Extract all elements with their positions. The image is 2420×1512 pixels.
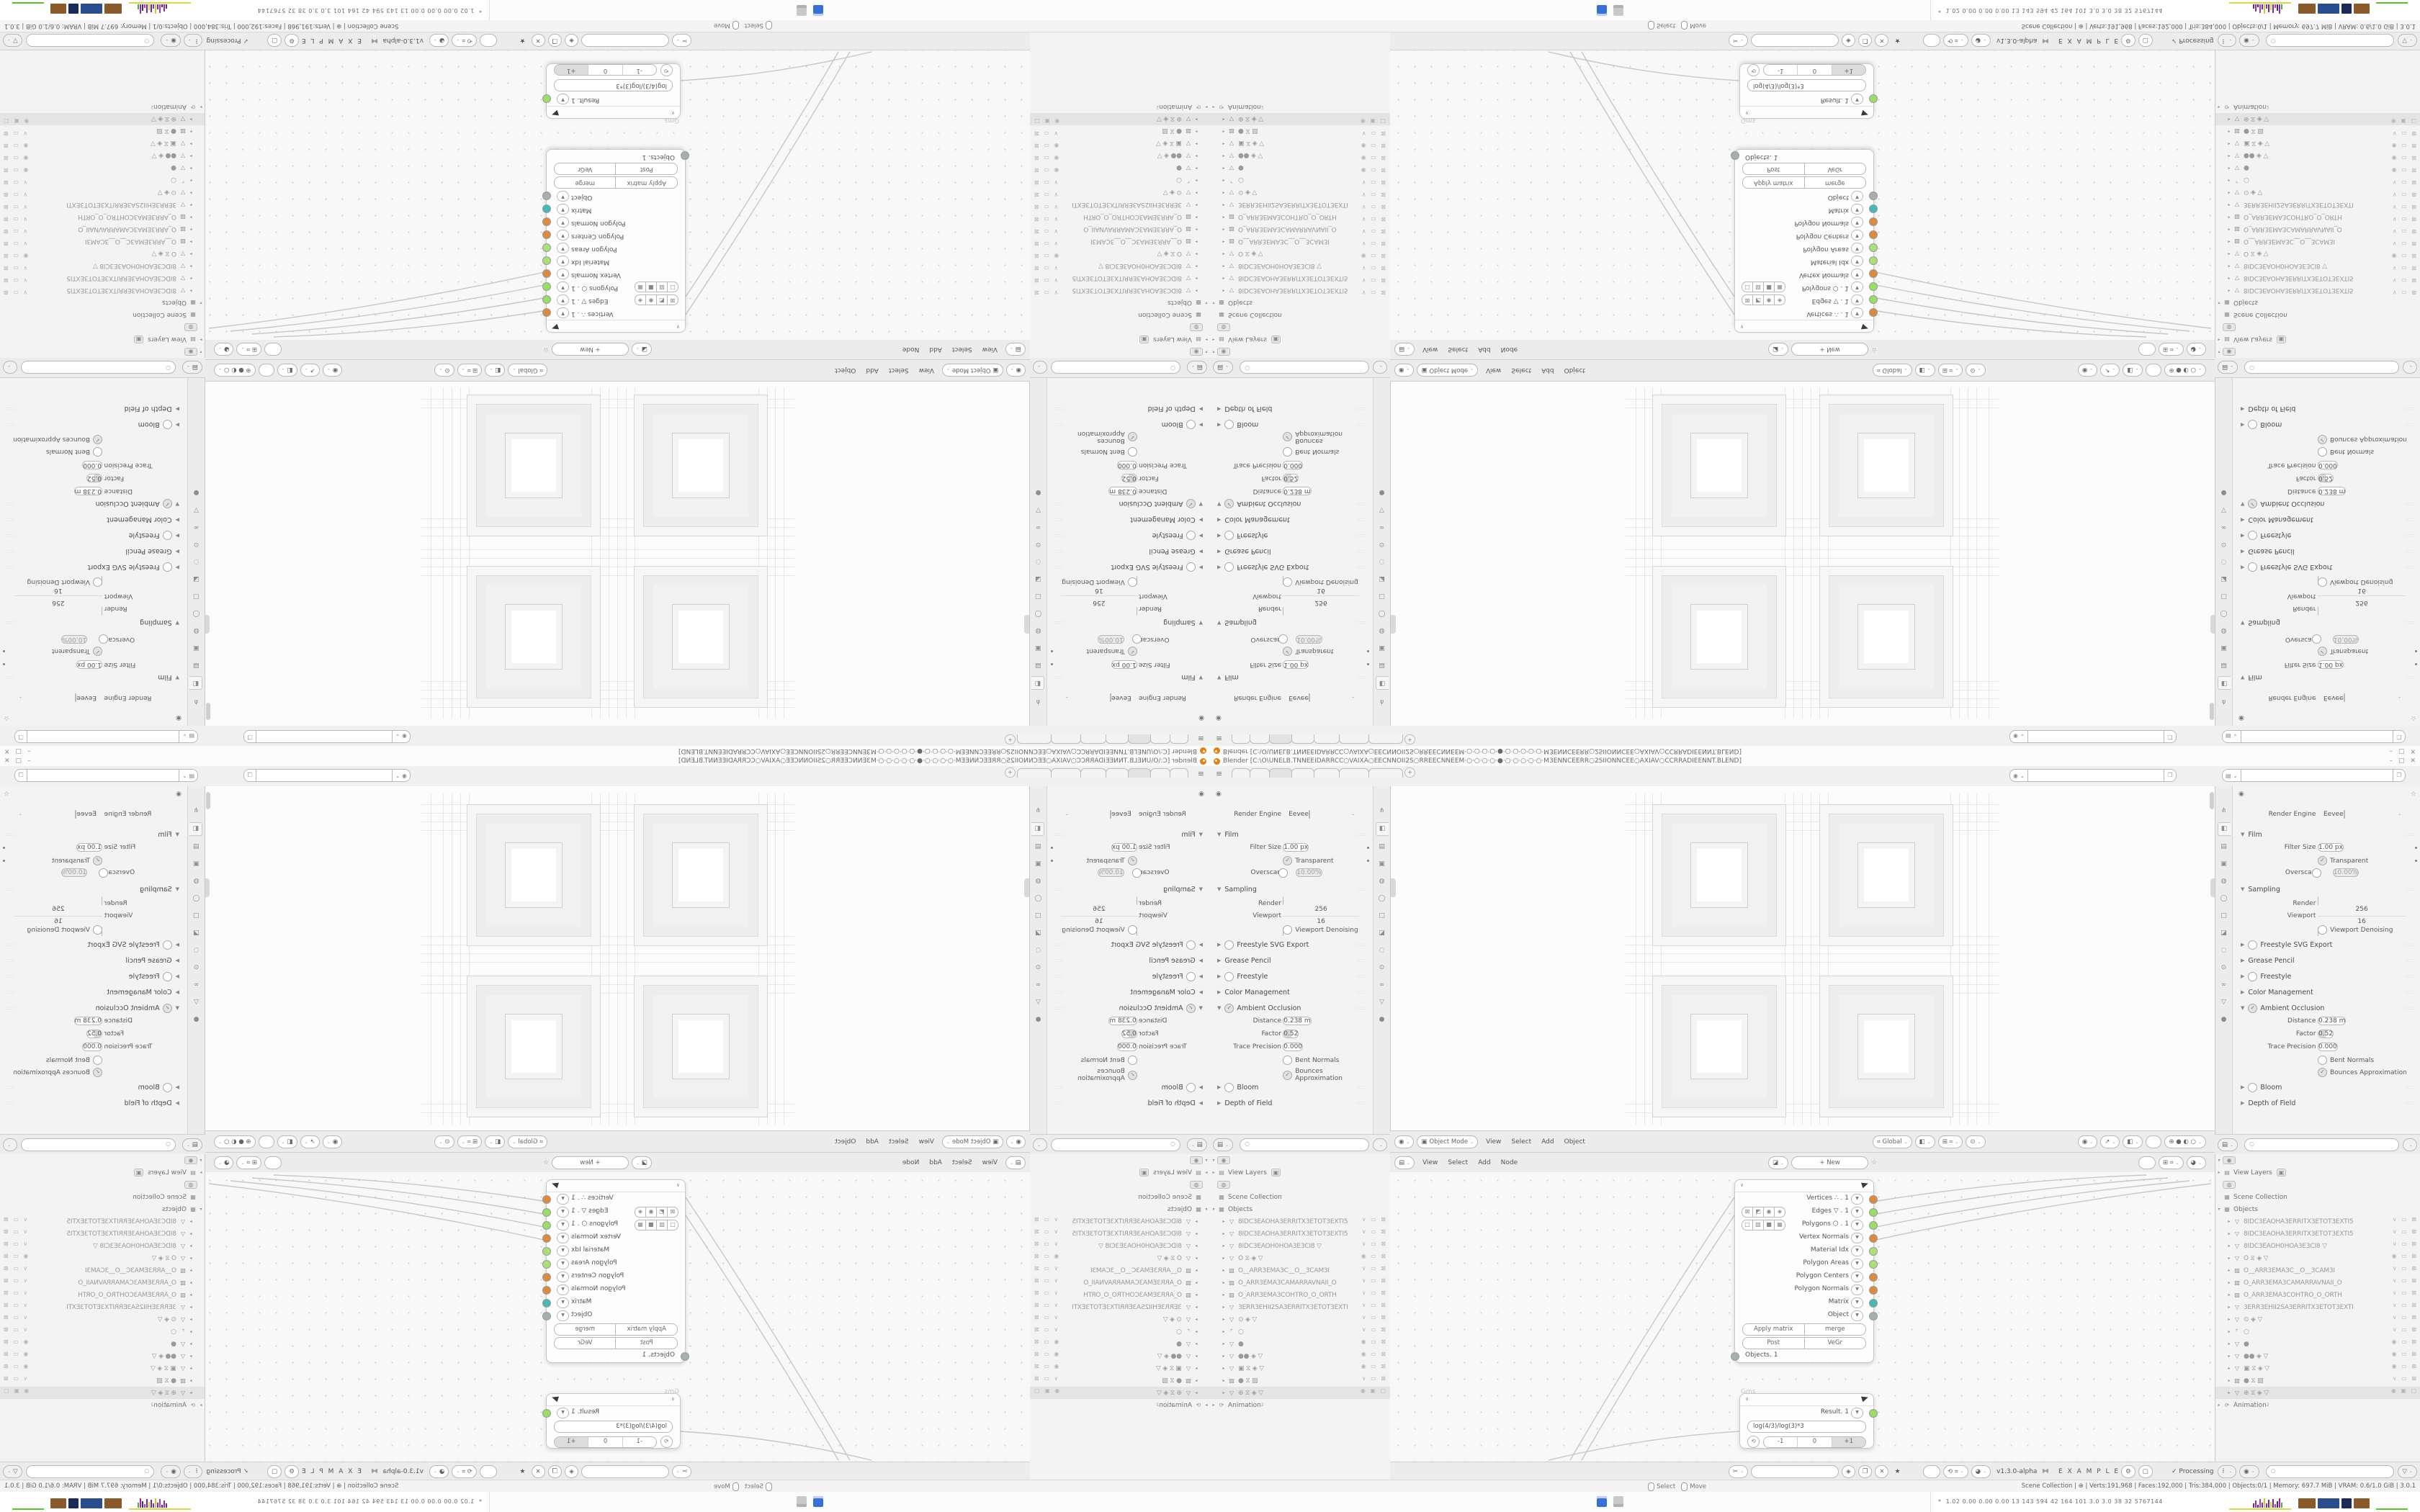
node-button[interactable]: VeGr bbox=[1804, 1337, 1867, 1349]
properties-tab-icon[interactable]: ▣ bbox=[190, 642, 202, 654]
render-engine-row[interactable]: Render EngineEevee⌄ bbox=[1210, 685, 1372, 707]
properties-tab-icon[interactable]: ◧ bbox=[2218, 676, 2231, 690]
section-header-sampling[interactable]: ▼Sampling:::: bbox=[1048, 881, 1210, 897]
viewport-scrollbar[interactable] bbox=[206, 703, 210, 720]
outliner-object-row[interactable]: ▸▽▣ ⧖ ◈ ▽◉ ▭ ⊠ bbox=[1210, 138, 1390, 150]
output-socket[interactable] bbox=[542, 204, 551, 213]
properties-tab-icon[interactable]: ∞ bbox=[2218, 979, 2230, 991]
output-socket[interactable] bbox=[542, 269, 551, 278]
properties-tab-icon[interactable]: ◍ bbox=[2218, 876, 2230, 888]
properties-tab-icon[interactable]: ⊙ bbox=[1376, 962, 1388, 974]
new-nodetree-button[interactable]: + New bbox=[552, 343, 629, 356]
orientation-selector[interactable]: ⌗ Global⌄ bbox=[508, 1135, 547, 1148]
section-header-film[interactable]: ▼Film:::: bbox=[0, 827, 187, 842]
node-menu-view[interactable]: View bbox=[982, 1159, 998, 1166]
node-button[interactable]: Apply matrix bbox=[617, 176, 678, 189]
properties-pin-icon-r[interactable]: ☆ bbox=[2411, 714, 2416, 721]
outliner-object-row[interactable]: ▸▽3ERR3EHII2SA3ERRITX3ETOT3EXTI∨ ▭ ⊠ bbox=[2215, 199, 2420, 211]
section-header-sampling[interactable]: ▼Sampling:::: bbox=[1048, 615, 1210, 631]
outliner-object-row[interactable]: ▸▨O_ARR3EMA3CAMARRAVNAII_O∨ ▭ ⊠ bbox=[1030, 1277, 1210, 1289]
outliner-object-row[interactable]: ▸▨● ⧖ ▨∨ ▭ ⊠ bbox=[1210, 1374, 1390, 1387]
section-header-freestyle[interactable]: ▶Freestyle:::: bbox=[0, 528, 187, 544]
viewlayer-selector[interactable]: ▤ ⌄ ❐ bbox=[14, 770, 198, 781]
outliner-tree-row[interactable]: ▾◉ bbox=[0, 1154, 205, 1166]
outliner-object-row[interactable]: ▸▽⊙ ◈ ▽∨ ▭ ⊠ bbox=[1210, 1313, 1390, 1326]
outliner-tree-row[interactable]: ▸▤View Layers ▣ bbox=[2215, 1166, 2420, 1179]
mini-grip-icon[interactable]: ⠇⌄ bbox=[2218, 35, 2236, 48]
outliner-object-row[interactable]: ▸▨O_ARR3EMA3COHTRO_O_ORTH∨ ▭ ⊠ bbox=[1210, 211, 1390, 223]
workspace-tab[interactable] bbox=[1314, 734, 1340, 744]
workspace-tab[interactable] bbox=[1232, 768, 1250, 778]
scene-selector[interactable]: ◉ ⌄ ❐ bbox=[2009, 770, 2177, 781]
output-socket[interactable] bbox=[1869, 230, 1878, 239]
node-snap-toggle[interactable]: ⊞ ⌗⌄ bbox=[2159, 1156, 2184, 1169]
properties-tab-icon[interactable]: ∞ bbox=[1032, 979, 1044, 991]
properties-tab-icon[interactable]: ◌ bbox=[2218, 945, 2230, 957]
outliner-object-row[interactable]: ▸▨O__ARR3EMA3C__O__3CAM3I∨ ▭ ⊠ bbox=[0, 235, 205, 248]
outliner-object-row[interactable]: ▸▨● ⧖ ▨∨ ▭ ⊠ bbox=[2215, 1374, 2420, 1387]
section-header-ambient-occlusion[interactable]: ▼✓Ambient Occlusion:::: bbox=[0, 496, 187, 512]
scene-copy-icon[interactable]: ❐ bbox=[2164, 730, 2177, 743]
outliner-object-row[interactable]: ▸▨● ⧖ ▨∨ ▭ ⊠ bbox=[1030, 1374, 1210, 1387]
outliner-object-row[interactable]: ▸▽8IDC3EAOH0HOA3E3CI8 ▽∨ ▭ ⊠ bbox=[1210, 260, 1390, 272]
output-socket[interactable] bbox=[1869, 295, 1878, 304]
viewport-left-sidebar-tab[interactable] bbox=[1024, 878, 1029, 897]
node-output-row[interactable]: Object▼ bbox=[547, 190, 685, 203]
output-socket[interactable] bbox=[542, 1273, 551, 1282]
output-socket[interactable] bbox=[1869, 1221, 1878, 1230]
examples-button[interactable]: E X A M P L E S bbox=[2058, 1468, 2129, 1475]
menu-object[interactable]: Object bbox=[1564, 1138, 1585, 1146]
outliner-tree-row[interactable]: ▾◉ bbox=[1030, 346, 1210, 358]
output-socket[interactable] bbox=[1869, 1208, 1878, 1217]
snap-toggle[interactable]: ◧⌄ bbox=[1915, 364, 1935, 377]
gizmo-toggle[interactable]: ◉⌄ bbox=[2078, 1135, 2097, 1148]
step-button[interactable]: -1 bbox=[622, 1437, 656, 1447]
workspace-tab[interactable] bbox=[1106, 734, 1129, 744]
properties-tab-icon[interactable]: □ bbox=[190, 910, 202, 922]
workspace-tab[interactable] bbox=[1291, 734, 1314, 744]
properties-tab-icon[interactable]: ∞ bbox=[2218, 521, 2230, 533]
node-output-row[interactable]: Polygon Areas▼ bbox=[547, 1257, 685, 1270]
node-output-row[interactable]: □▧■▦Polygons ⬡ . 1▼ bbox=[1735, 281, 1873, 294]
viewlayer-copy-icon[interactable]: ❐ bbox=[2393, 730, 2406, 743]
section-header-grease-pencil[interactable]: ▶Grease Pencil:::: bbox=[1048, 953, 1210, 968]
outliner-object-row[interactable]: ▸▽8IDC3EAOHA3ERRITX3ETOT3EXTI5∨ ▭ ⊠ bbox=[1210, 1228, 1390, 1240]
properties-tab-icon[interactable]: ◯ bbox=[1376, 607, 1388, 619]
viewlayer-name-field[interactable] bbox=[2241, 730, 2393, 743]
outliner-filter-icon-r[interactable]: ▤⌄ bbox=[2218, 361, 2238, 374]
refresh-button[interactable]: ⟲ bbox=[1747, 64, 1760, 76]
step-button[interactable]: 0 bbox=[588, 1437, 622, 1447]
outliner-object-row[interactable]: ▸▽8IDC3EAOHA3ERRITX3ETOT3EXTI5∨ ▭ ⊠ bbox=[2215, 284, 2420, 297]
properties-tab-icon[interactable]: ◧ bbox=[2218, 822, 2231, 836]
output-socket[interactable] bbox=[542, 217, 551, 226]
xray-toggle[interactable]: ◧⌄ bbox=[2123, 364, 2143, 377]
node-output-row[interactable]: □▧■▦Polygons ⬡ . 1▼ bbox=[547, 281, 685, 294]
properties-tab-icon[interactable]: ▽ bbox=[2218, 996, 2230, 1009]
fake-user-shield-icon[interactable]: ◈ bbox=[565, 35, 578, 48]
outliner-object-row[interactable]: ▸▨O_ARR3EMA3CAMARRAVNAII_O∨ ▭ ⊠ bbox=[1210, 223, 1390, 235]
node-overlay-toggle[interactable]: ◕⌄ bbox=[214, 343, 233, 356]
footer-shading-toggle[interactable]: ◕⌄ bbox=[429, 35, 449, 48]
outliner-object-row[interactable]: ▸▨O_ARR3EMA3CAMARRAVNAII_O∨ ▭ ⊠ bbox=[0, 223, 205, 235]
mini-scene-icon[interactable]: ◉⌄ bbox=[161, 1465, 180, 1478]
properties-tab-icon[interactable]: ◧ bbox=[1032, 676, 1045, 690]
workspace-tab[interactable] bbox=[1080, 768, 1106, 778]
menu-view[interactable]: View bbox=[1486, 1138, 1501, 1146]
node-output-row[interactable]: Polygon Normals▼ bbox=[1735, 1283, 1873, 1296]
node-output-row[interactable]: ⊠◩◉◈Edges ▽ . 1▼ bbox=[547, 294, 685, 307]
render-engine-dropdown[interactable]: Eevee⌄ bbox=[1309, 810, 1310, 819]
node-button[interactable]: Post bbox=[617, 1337, 678, 1349]
section-header-grease-pencil[interactable]: ▶Grease Pencil:::: bbox=[0, 953, 187, 968]
workspace-tab[interactable] bbox=[1017, 734, 1052, 744]
outliner-filter-dropdown[interactable]: ⌄ bbox=[1033, 1138, 1047, 1151]
objects-input-socket[interactable] bbox=[681, 1352, 689, 1361]
overlays-toggle[interactable]: ↗⌄ bbox=[2100, 1135, 2120, 1148]
workspace-tab[interactable] bbox=[1017, 768, 1052, 778]
shading-mode-buttons[interactable]: ⊕ ● ◐ ○⌄ bbox=[214, 1135, 256, 1148]
properties-tab-icon[interactable]: ▽ bbox=[1376, 503, 1388, 516]
outliner-object-row[interactable]: ▸▽▣ ⧖ ◈ ▽◉ ▭ ⊠ bbox=[1030, 138, 1210, 150]
section-header-film[interactable]: ▼Film:::: bbox=[1048, 670, 1210, 685]
node-menu-node[interactable]: Node bbox=[902, 346, 920, 353]
workspace-tab[interactable] bbox=[1368, 768, 1403, 778]
add-workspace-button[interactable]: + bbox=[1005, 768, 1016, 778]
properties-tab-icon[interactable]: ◍ bbox=[1376, 624, 1388, 636]
node-output-row[interactable]: Vertex Normals▼ bbox=[1735, 268, 1873, 281]
outliner-tree-row[interactable]: ▸▤View Layers ▣ bbox=[2215, 333, 2420, 346]
gizmo-toggle[interactable]: ◉⌄ bbox=[323, 364, 342, 377]
properties-tab-icon[interactable]: ▣ bbox=[1032, 858, 1044, 870]
step-button[interactable]: +1 bbox=[555, 66, 588, 76]
output-socket[interactable] bbox=[1869, 1234, 1878, 1243]
properties-tab-icon[interactable]: ◧ bbox=[190, 676, 203, 690]
output-socket[interactable] bbox=[542, 1312, 551, 1320]
viewlayer-copy-icon[interactable]: ❐ bbox=[14, 769, 27, 782]
node-button[interactable]: Apply matrix bbox=[617, 1323, 678, 1336]
section-header-bloom[interactable]: ▶Bloom:::: bbox=[1048, 1079, 1210, 1095]
properties-tab-icon[interactable]: ∞ bbox=[190, 979, 202, 991]
viewport-left-sidebar-tab[interactable] bbox=[1024, 615, 1029, 634]
menu-add[interactable]: Add bbox=[1541, 1138, 1554, 1146]
section-header-bloom[interactable]: ▶Bloom:::: bbox=[0, 1079, 187, 1095]
step-button[interactable]: +1 bbox=[555, 1437, 588, 1447]
outliner-search-input-r[interactable] bbox=[2244, 361, 2399, 374]
outliner-search-input[interactable] bbox=[1051, 1138, 1180, 1151]
workspace-tab[interactable] bbox=[1080, 734, 1106, 744]
render-engine-row[interactable]: Render EngineEevee⌄ bbox=[1210, 805, 1372, 827]
section-header-depth-of-field[interactable]: ▶Depth of Field:::: bbox=[1210, 401, 1372, 417]
output-socket[interactable] bbox=[542, 1247, 551, 1256]
output-socket[interactable] bbox=[1869, 243, 1878, 252]
properties-tab-icon[interactable]: ◪ bbox=[190, 572, 202, 585]
mini-funnel-icon[interactable]: ▽⌄ bbox=[3, 35, 22, 48]
section-header-sampling[interactable]: ▼Sampling:::: bbox=[2233, 615, 2420, 631]
node-editor-canvas[interactable]: ∨ Vertices ∴ . 1▼⊠◩◉◈Edges ▽ . 1▼□▧■▦Pol… bbox=[205, 1172, 1030, 1462]
node-output-row[interactable]: Vertex Normals▼ bbox=[547, 1231, 685, 1244]
section-header-freestyle[interactable]: ▶Freestyle:::: bbox=[1210, 528, 1372, 544]
output-socket[interactable] bbox=[1869, 256, 1878, 265]
workspace-tab[interactable] bbox=[1339, 734, 1369, 744]
section-header-depth-of-field[interactable]: ▶Depth of Field:::: bbox=[2233, 1095, 2420, 1111]
outliner-filter-dropdown[interactable]: ⌄ bbox=[1373, 361, 1387, 374]
output-socket[interactable] bbox=[542, 1260, 551, 1269]
section-header-sampling[interactable]: ▼Sampling:::: bbox=[0, 615, 187, 631]
section-header-freestyle-svg-export[interactable]: ▶Freestyle SVG Export:::: bbox=[1210, 937, 1372, 953]
outliner-object-row[interactable]: ▸▨O_ARR3EMA3CAMARRAVNAII_O∨ ▭ ⊠ bbox=[1210, 1277, 1390, 1289]
node-output-row[interactable]: Polygon Centers▼ bbox=[1735, 229, 1873, 242]
node-output-row[interactable]: Polygon Normals▼ bbox=[547, 1283, 685, 1296]
node-output-row[interactable]: ⊠◩◉◈Edges ▽ . 1▼ bbox=[1735, 1205, 1873, 1218]
properties-tab-icon[interactable]: ▤ bbox=[1376, 841, 1388, 853]
render-engine-dropdown[interactable]: Eevee⌄ bbox=[1110, 693, 1111, 702]
output-socket[interactable] bbox=[542, 1286, 551, 1295]
output-socket[interactable] bbox=[542, 282, 551, 291]
shading-mode-buttons[interactable]: ⊕ ● ◐ ○⌄ bbox=[2164, 364, 2206, 377]
section-header-freestyle-svg-export[interactable]: ▶Freestyle SVG Export:::: bbox=[2233, 937, 2420, 953]
outliner-object-row[interactable]: ▸▽8IDC3EAOHA3ERRITX3ETOT3EXTI5∨ ▭ ⊠ bbox=[1210, 1215, 1390, 1228]
properties-tab-icon[interactable]: ⊙ bbox=[2218, 538, 2230, 550]
properties-tab-icon[interactable]: ⋔ bbox=[1032, 695, 1044, 707]
outliner-tree-row[interactable]: ◍ bbox=[2215, 321, 2420, 333]
properties-tab-icon[interactable]: ▤ bbox=[1376, 659, 1388, 671]
properties-tab-icon[interactable]: ◌ bbox=[1376, 555, 1388, 567]
workspace-tab[interactable] bbox=[1170, 734, 1188, 744]
properties-tab-icon[interactable]: ◪ bbox=[1032, 572, 1044, 585]
outliner-tree-row[interactable]: ▾▦Objects bbox=[1030, 297, 1210, 309]
nodetree-pin-icon[interactable]: ☆ bbox=[1871, 1159, 1877, 1166]
properties-editor-icon-r[interactable]: ◉ bbox=[176, 791, 181, 798]
node-overlay-toggle[interactable]: ◕⌄ bbox=[2187, 1156, 2206, 1169]
outliner-object-row[interactable]: ▸▨O__ARR3EMA3C__O__3CAM3I∨ ▭ ⊠ bbox=[2215, 235, 2420, 248]
node-menu-add[interactable]: Add bbox=[1478, 346, 1490, 353]
properties-pin-icon-r[interactable]: ☆ bbox=[4, 714, 9, 721]
section-header-freestyle-svg-export[interactable]: ▶Freestyle SVG Export:::: bbox=[1048, 559, 1210, 575]
workspace-tab[interactable] bbox=[1232, 734, 1250, 744]
node-menu-select[interactable]: Select bbox=[952, 346, 972, 353]
outliner-object-row[interactable]: ▸▽⊙ ◈ ▽∨ ▭ ⊠ bbox=[2215, 186, 2420, 199]
node-output-row[interactable]: Material Idx▼ bbox=[547, 1244, 685, 1257]
node-output-row[interactable]: Vertices ∴ . 1▼ bbox=[1735, 1192, 1873, 1205]
outliner-tree-row[interactable]: ▾◉ bbox=[1210, 1154, 1390, 1166]
menu-select[interactable]: Select bbox=[889, 366, 909, 374]
outliner-object-row[interactable]: ▸▽●◉ ▭ ⊠ bbox=[0, 1338, 205, 1350]
outliner-object-row[interactable]: ▸▽O ⧖ ◈ ▽◉ ▭ ⊠ bbox=[1210, 248, 1390, 260]
footer-shading-toggle[interactable]: ◕⌄ bbox=[1971, 1465, 1991, 1478]
footer-shading-toggle[interactable]: ◕⌄ bbox=[429, 1465, 449, 1478]
menu-select[interactable]: Select bbox=[1511, 366, 1531, 374]
section-header-color-management[interactable]: ▶Color Management:::: bbox=[1048, 512, 1210, 528]
section-header-depth-of-field[interactable]: ▶Depth of Field:::: bbox=[0, 401, 187, 417]
outliner-object-row[interactable]: ▸▽8IDC3EAOHA3ERRITX3ETOT3EXTI5∨ ▭ ⊠ bbox=[2215, 1215, 2420, 1228]
outliner-object-row[interactable]: ▸▽●● ◈ ▽◉ ▭ ⊠ bbox=[1210, 150, 1390, 162]
outliner-object-row[interactable]: ▸▽⊕ ⧖ ◈ ▽◉ ▣ ▢ bbox=[0, 113, 205, 125]
result-output-socket[interactable] bbox=[542, 1409, 551, 1418]
properties-tab-icon[interactable]: ◧ bbox=[1032, 822, 1045, 836]
mini-grip-icon[interactable]: ⠇⌄ bbox=[2218, 1465, 2236, 1478]
properties-tab-icon[interactable]: ▤ bbox=[2218, 659, 2230, 671]
outliner-object-row[interactable]: ▸▽8IDC3EAOHA3ERRITX3ETOT3EXTI5∨ ▭ ⊠ bbox=[2215, 1228, 2420, 1240]
result-output-socket[interactable] bbox=[1869, 1409, 1878, 1418]
outliner-object-row[interactable]: ▸▨O__ARR3EMA3C__O__3CAM3I∨ ▭ ⊠ bbox=[2215, 1264, 2420, 1277]
outliner-object-row[interactable]: ▸▽▣ ⧖ ◈ ▽◉ ▭ ⊠ bbox=[0, 138, 205, 150]
footer-circle-toggle[interactable] bbox=[1923, 1465, 1940, 1478]
properties-tab-icon[interactable]: ● bbox=[1376, 1014, 1388, 1026]
render-engine-row[interactable]: Render EngineEevee⌄ bbox=[0, 685, 187, 707]
outliner-tree-row[interactable]: ▾▦Objects bbox=[1030, 1203, 1210, 1215]
outliner-filter-icon-r[interactable]: ▤⌄ bbox=[182, 1138, 202, 1151]
fake-user-shield-icon[interactable]: ◈ bbox=[565, 1465, 578, 1478]
objects-input-socket[interactable] bbox=[1731, 151, 1739, 160]
footer-shading-toggle[interactable]: ◕⌄ bbox=[1971, 35, 1991, 48]
result-output-dropdown[interactable]: ▼ bbox=[1851, 94, 1863, 104]
outliner-tree-row[interactable]: ▸▤View Layers ▣ bbox=[1030, 1166, 1210, 1179]
tree-copy-icon[interactable]: ❐ bbox=[548, 1465, 563, 1478]
mini-search-input[interactable] bbox=[2266, 35, 2395, 48]
output-socket[interactable] bbox=[542, 308, 551, 317]
outliner-object-row[interactable]: ▸▽⊕ ⧖ ◈ ▽◉ ▣ ▢ bbox=[2215, 1387, 2420, 1399]
step-button[interactable]: +1 bbox=[1832, 66, 1865, 76]
properties-tab-icon[interactable]: ◯ bbox=[1376, 893, 1388, 905]
node-snap-toggle[interactable]: ⊞ ⌗⌄ bbox=[236, 1156, 261, 1169]
overlays-toggle[interactable]: ↗⌄ bbox=[2100, 364, 2120, 377]
menu-view[interactable]: View bbox=[919, 1138, 934, 1146]
node-output-row[interactable]: Matrix▼ bbox=[547, 203, 685, 216]
outliner-tree-row[interactable]: ▦Scene Collection bbox=[1210, 309, 1390, 321]
outliner-object-row[interactable]: ▸▽●◉ ▭ ⊠ bbox=[1210, 162, 1390, 174]
workspace-tab[interactable] bbox=[1269, 734, 1292, 744]
proportional-edit-toggle[interactable]: ⊙⌄ bbox=[1966, 364, 1985, 377]
properties-tab-icon[interactable]: ◪ bbox=[1376, 572, 1388, 585]
node-button[interactable]: VeGr bbox=[1804, 163, 1867, 175]
menu-hamburger-icon[interactable]: ≡ bbox=[1216, 734, 1222, 743]
properties-tab-icon[interactable]: ▤ bbox=[2218, 841, 2230, 853]
tree-name-field[interactable] bbox=[581, 1465, 669, 1478]
mini-funnel-icon[interactable]: ▽⌄ bbox=[2398, 35, 2417, 48]
outliner-object-row[interactable]: ▸▽O ⧖ ◈ ▽◉ ▭ ⊠ bbox=[1030, 248, 1210, 260]
refresh-button[interactable]: ⟲ bbox=[1747, 1436, 1760, 1448]
outliner-object-row[interactable]: ▸▽O ⧖ ◈ ▽◉ ▭ ⊠ bbox=[1210, 1252, 1390, 1264]
render-engine-dropdown[interactable]: Eevee⌄ bbox=[2344, 693, 2345, 702]
outliner-tree-row[interactable]: ▾▦Objects bbox=[1210, 1203, 1390, 1215]
outliner-search-input-r[interactable] bbox=[21, 361, 176, 374]
properties-editor-icon-r[interactable]: ◉ bbox=[2238, 791, 2244, 798]
outliner-tree-row[interactable]: ▦Scene Collection bbox=[1210, 1191, 1390, 1203]
tree-sel-icon[interactable]: ✂⌄ bbox=[672, 1465, 691, 1478]
output-socket[interactable] bbox=[1869, 282, 1878, 291]
node-menu-select[interactable]: Select bbox=[1448, 346, 1468, 353]
node-output-row[interactable]: □▧■▦Polygons ⬡ . 1▼ bbox=[1735, 1218, 1873, 1231]
step-button[interactable]: 0 bbox=[588, 66, 622, 76]
properties-tab-icon[interactable]: ◯ bbox=[190, 893, 202, 905]
properties-tab-icon[interactable]: ⋔ bbox=[2218, 805, 2230, 817]
outliner-object-row[interactable]: ▸▨O__ARR3EMA3C__O__3CAM3I∨ ▭ ⊠ bbox=[1210, 235, 1390, 248]
outliner-object-row[interactable]: ▸▨O_ARR3EMA3COHTRO_O_ORTH∨ ▭ ⊠ bbox=[1210, 1289, 1390, 1301]
result-collapse-icon[interactable]: ∨ bbox=[1745, 1396, 1749, 1402]
add-workspace-button[interactable]: + bbox=[1404, 734, 1415, 744]
viewport-scrollbar[interactable] bbox=[206, 792, 210, 809]
step-buttons[interactable]: -10+1 bbox=[554, 1436, 657, 1448]
node-menu-view[interactable]: View bbox=[1422, 1159, 1438, 1166]
section-header-bloom[interactable]: ▶Bloom:::: bbox=[2233, 417, 2420, 433]
outliner-object-row[interactable]: ▸▽8IDC3EAOH0HOA3E3CI8 ▽∨ ▭ ⊠ bbox=[2215, 1240, 2420, 1252]
render-engine-row[interactable]: Render EngineEevee⌄ bbox=[1048, 805, 1210, 827]
shading-mode-buttons[interactable]: ⊕ ● ◐ ○⌄ bbox=[214, 364, 256, 377]
xray-toggle[interactable]: ◧⌄ bbox=[277, 1135, 297, 1148]
section-header-sampling[interactable]: ▼Sampling:::: bbox=[2233, 881, 2420, 897]
orientation-selector[interactable]: ⌗ Global⌄ bbox=[1873, 364, 1912, 377]
outliner-filter-dropdown-r[interactable]: ⌄ bbox=[2403, 1138, 2417, 1151]
properties-tab-icon[interactable]: ⊙ bbox=[1032, 962, 1044, 974]
objects-node[interactable]: ∨ Vertices ∴ . 1▼⊠◩◉◈Edges ▽ . 1▼□▧■▦Pol… bbox=[1734, 149, 1874, 333]
outliner-object-row[interactable]: ▸▽●◉ ▭ ⊠ bbox=[2215, 162, 2420, 174]
result-output-dropdown[interactable]: ▼ bbox=[557, 1408, 569, 1418]
outliner-object-row[interactable]: ▸▽8IDC3EAOHA3ERRITX3ETOT3EXTI5∨ ▭ ⊠ bbox=[0, 272, 205, 284]
result-node[interactable]: ∨ Result. 1 ▼ log(4/3)/log(3)*3 ⟲ -10+1 bbox=[546, 1393, 681, 1449]
section-header-sampling[interactable]: ▼Sampling:::: bbox=[1210, 615, 1372, 631]
result-node[interactable]: ∨ Result. 1 ▼ log(4/3)/log(3)*3 ⟲ -10+1 bbox=[546, 63, 681, 119]
node-button[interactable]: Apply matrix bbox=[1742, 1323, 1804, 1336]
output-socket[interactable] bbox=[1869, 1195, 1878, 1204]
section-header-grease-pencil[interactable]: ▶Grease Pencil:::: bbox=[1210, 544, 1372, 559]
outliner-object-row[interactable]: ▸▽8IDC3EAOH0HOA3E3CI8 ▽∨ ▭ ⊠ bbox=[0, 260, 205, 272]
viewport-3d[interactable] bbox=[1390, 382, 2215, 726]
outliner-object-row[interactable]: ▸▽⊕ ⧖ ◈ ▽◉ ▣ ▢ bbox=[1030, 1387, 1210, 1399]
outliner-object-row[interactable]: ▸▽⊙ ◈ ▽∨ ▭ ⊠ bbox=[0, 186, 205, 199]
formula-field[interactable]: log(4/3)/log(3)*3 bbox=[1747, 79, 1866, 91]
maximize-button[interactable]: ▢ bbox=[2398, 757, 2405, 765]
step-buttons[interactable]: -10+1 bbox=[1763, 65, 1866, 76]
step-button[interactable]: -1 bbox=[622, 66, 656, 76]
node-output-row[interactable]: □▧■▦Polygons ⬡ . 1▼ bbox=[547, 1218, 685, 1231]
outliner-tree-row[interactable]: ▾▦Objects bbox=[0, 1203, 205, 1215]
outliner-tree-row[interactable]: ◍ bbox=[0, 1179, 205, 1191]
node-menu-view[interactable]: View bbox=[1422, 346, 1438, 353]
menu-object[interactable]: Object bbox=[835, 366, 856, 374]
fake-user-shield-icon[interactable]: ◈ bbox=[1842, 35, 1855, 48]
output-socket[interactable] bbox=[1869, 192, 1878, 200]
properties-tab-icon[interactable]: ⊙ bbox=[2218, 962, 2230, 974]
section-header-film[interactable]: ▼Film:::: bbox=[2233, 827, 2420, 842]
output-socket[interactable] bbox=[542, 1234, 551, 1243]
menu-add[interactable]: Add bbox=[866, 366, 878, 374]
properties-tab-icon[interactable]: ◌ bbox=[2218, 555, 2230, 567]
outliner-tree-row[interactable]: ▦Scene Collection bbox=[0, 309, 205, 321]
close-button[interactable]: ✕ bbox=[2410, 757, 2416, 765]
tool-app-icon[interactable] bbox=[1613, 1496, 1623, 1507]
section-header-ambient-occlusion[interactable]: ▼✓Ambient Occlusion:::: bbox=[2233, 1000, 2420, 1016]
outliner-object-row[interactable]: ▸▨● ⧖ ▨∨ ▭ ⊠ bbox=[1030, 125, 1210, 138]
node-menu-node[interactable]: Node bbox=[1501, 1159, 1518, 1166]
result-node[interactable]: ∨ Result. 1 ▼ log(4/3)/log(3)*3 ⟲ -10+1 bbox=[1739, 63, 1874, 119]
snap-toggle[interactable]: ◧⌄ bbox=[1915, 1135, 1935, 1148]
output-socket[interactable] bbox=[1869, 217, 1878, 226]
xray-toggle[interactable]: ◧⌄ bbox=[2123, 1135, 2143, 1148]
outliner-object-row[interactable]: ▸▨O_ARR3EMA3COHTRO_O_ORTH∨ ▭ ⊠ bbox=[2215, 211, 2420, 223]
viewport-scrollbar[interactable] bbox=[2210, 792, 2214, 809]
overlays-toggle[interactable]: ↗⌄ bbox=[300, 1135, 320, 1148]
viewport-3d[interactable] bbox=[1390, 786, 2215, 1130]
render-engine-dropdown[interactable]: Eevee⌄ bbox=[1309, 693, 1310, 702]
footer-circle-toggle[interactable] bbox=[1923, 35, 1940, 48]
addon-settings-button[interactable]: ⚙ bbox=[284, 35, 299, 48]
outliner-object-row[interactable]: ▸▽●● ◈ ▽◉ ▭ ⊠ bbox=[2215, 150, 2420, 162]
node-button[interactable]: merge bbox=[554, 176, 617, 189]
outliner-object-row[interactable]: ▸▽⊙ ◈ ▽∨ ▭ ⊠ bbox=[2215, 1313, 2420, 1326]
outliner-object-row[interactable]: ▸▨● ⧖ ▨∨ ▭ ⊠ bbox=[2215, 125, 2420, 138]
